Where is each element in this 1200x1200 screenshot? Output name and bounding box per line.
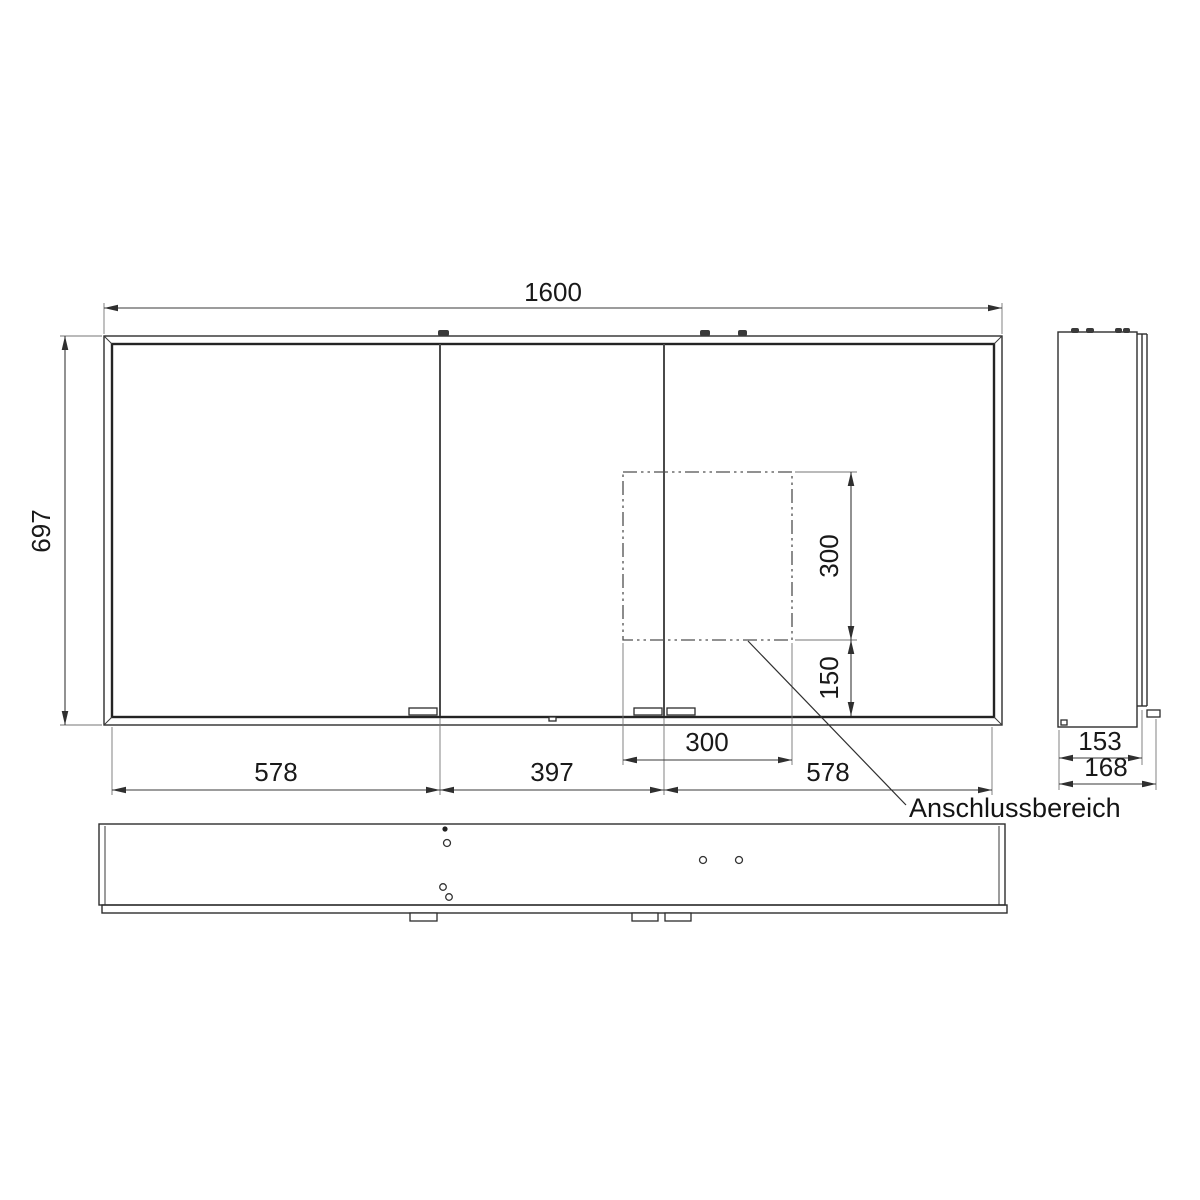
connection-area-label: Anschlussbereich (909, 793, 1121, 823)
door-bottom-tabs (409, 708, 695, 721)
side-view (1058, 328, 1160, 727)
technical-drawing-canvas: 1600 697 578 397 578 300 (0, 0, 1200, 1200)
dim-overall-width-label: 1600 (524, 277, 582, 307)
mounting-holes (440, 826, 743, 900)
dim-connection-offset-label: 150 (814, 656, 844, 699)
cabinet-inner-frame (112, 344, 994, 717)
plan-door-strip (102, 905, 1007, 913)
dim-overall-width: 1600 (104, 277, 1002, 334)
dim-door-left-label: 578 (254, 757, 297, 787)
hinge-marks-top (438, 330, 747, 336)
cabinet-outer-frame (104, 336, 1002, 725)
frame-bevel-corners (104, 336, 1002, 725)
dim-connection-width: 300 (623, 643, 792, 765)
dim-side-total-depth-label: 168 (1084, 752, 1127, 782)
plan-body (99, 824, 1005, 905)
dim-connection-height-label: 300 (814, 534, 844, 577)
dim-connection-width-label: 300 (685, 727, 728, 757)
front-view (104, 330, 1002, 725)
plan-view (99, 824, 1007, 921)
connection-area-box (623, 472, 792, 640)
dim-connection-height: 300 (795, 472, 857, 640)
side-body (1058, 332, 1137, 727)
dim-door-center-label: 397 (530, 757, 573, 787)
side-bottom-foot (1061, 720, 1067, 725)
dim-overall-height-label: 697 (26, 509, 56, 552)
dim-connection-offset: 150 (814, 640, 851, 716)
side-bottom-tab (1147, 710, 1160, 717)
side-door-lines (1137, 334, 1147, 706)
cabinet-technical-drawing: 1600 697 578 397 578 300 (0, 0, 1200, 1200)
plan-tabs (410, 913, 691, 921)
dim-door-right-label: 578 (806, 757, 849, 787)
connection-annotation: Anschlussbereich (748, 641, 1121, 823)
dim-overall-height: 697 (26, 336, 102, 725)
dimensions: 1600 697 578 397 578 300 (26, 277, 1156, 823)
